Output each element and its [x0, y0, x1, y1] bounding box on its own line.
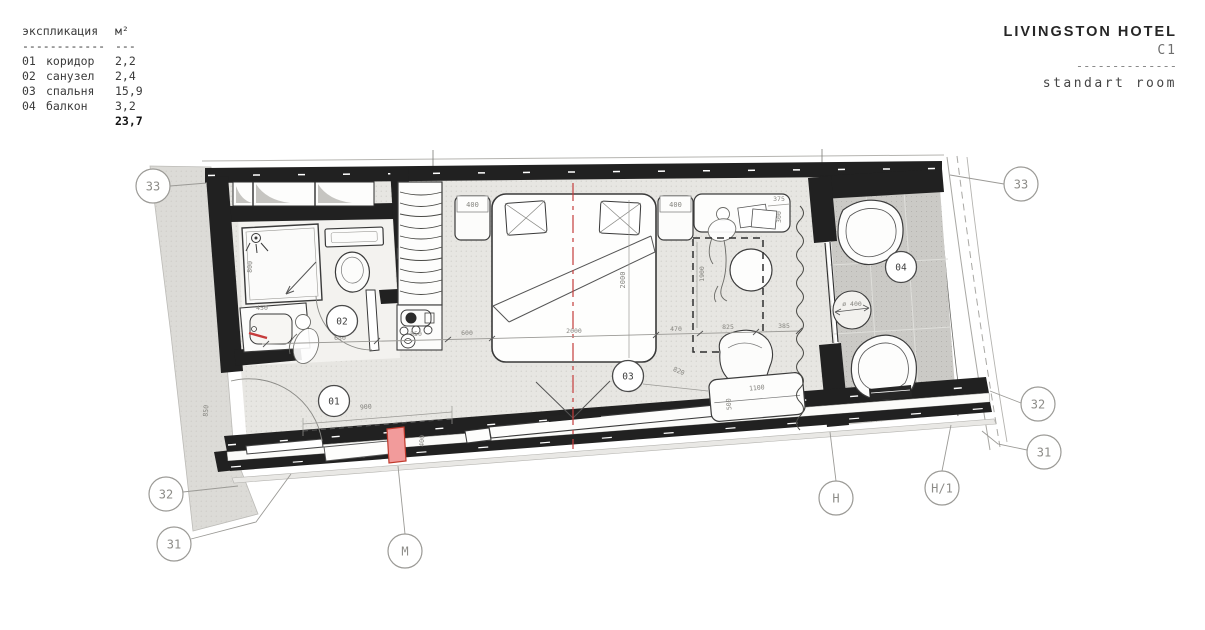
dim-shower: 800 — [246, 261, 254, 273]
room-label-bathroom: 02 — [336, 317, 347, 328]
dim-desk-zone: 1900 — [698, 266, 706, 282]
axis-33-left: 33 — [146, 180, 160, 194]
dim-desk-depth: 300 — [775, 211, 783, 223]
room-label-corridor: 01 — [328, 397, 340, 408]
axis-31-right: 31 — [1037, 446, 1051, 460]
minibar-red — [387, 427, 406, 463]
dim-entry: 850 — [202, 405, 211, 417]
dim-table-depth: 500 — [725, 398, 734, 410]
wall-bath-door-head — [379, 289, 400, 304]
floor-plan: 650 550 600 2000 470 825 385 400 400 200… — [0, 0, 1205, 630]
dim-minibar: 400 — [418, 435, 427, 447]
unit-code: C1 — [1003, 43, 1177, 58]
axis-32-left: 32 — [159, 488, 173, 502]
legend-row-corridor: 01коридор2,2 — [22, 54, 143, 69]
pillow — [599, 201, 641, 235]
dim-desk-width: 375 — [773, 195, 785, 203]
legend: экспликациям² --------------- 01коридор2… — [22, 24, 143, 129]
axis-m: M — [401, 545, 408, 559]
coffee-station — [397, 305, 442, 350]
title-divider: -------------- — [1003, 59, 1177, 73]
legend-dash: ------------ — [22, 39, 115, 54]
dim-chain-curtain: 385 — [778, 322, 790, 330]
sheet: экспликациям² --------------- 01коридор2… — [0, 0, 1205, 630]
legend-total: 23,7 — [115, 114, 143, 129]
title-block: LIVINGSTON HOTEL C1 -------------- stand… — [1003, 24, 1177, 91]
dim-table-length: 1100 — [749, 383, 765, 392]
axis-33-right: 33 — [1014, 178, 1028, 192]
legend-row-bedroom: 03спальня15,9 — [22, 84, 143, 99]
room-label-bedroom: 03 — [622, 372, 633, 383]
legend-title: экспликация — [22, 24, 115, 39]
dim-chain-closet: 550 — [410, 330, 422, 338]
table-bottom — [708, 372, 805, 422]
dim-chain-desk: 825 — [722, 323, 734, 331]
legend-unit: м² — [115, 24, 129, 39]
balcony-table — [833, 291, 871, 329]
round-table — [730, 249, 772, 291]
hotel-name: LIVINGSTON HOTEL — [1003, 24, 1177, 40]
axis-32-right: 32 — [1031, 398, 1045, 412]
axis-h1: H/1 — [931, 482, 953, 496]
dim-bed-width: 2000 — [619, 272, 627, 289]
axis-31-left: 31 — [167, 538, 181, 552]
dim-chain-bed: 2000 — [566, 327, 582, 335]
dim-nightstand-left: 400 — [466, 201, 479, 209]
roof-edge-line — [202, 155, 944, 161]
dim-wardrobe: 900 — [360, 403, 372, 412]
pillow — [505, 201, 547, 236]
axis-h: H — [832, 492, 839, 506]
dim-vanity: 450 — [256, 304, 268, 312]
dim-chain-entry: 600 — [461, 329, 473, 337]
dim-chain-gap: 470 — [670, 325, 682, 333]
room-label-balcony: 04 — [895, 263, 907, 274]
legend-row-bathroom: 02санузел2,4 — [22, 69, 143, 84]
closet — [397, 182, 442, 350]
room-type: standart room — [1003, 76, 1177, 91]
vent-shafts — [233, 182, 374, 206]
dim-balcony-table: ø 400 — [842, 300, 862, 308]
dim-nightstand-right: 400 — [669, 201, 682, 209]
legend-row-balcony: 04балкон3,2 — [22, 99, 143, 114]
